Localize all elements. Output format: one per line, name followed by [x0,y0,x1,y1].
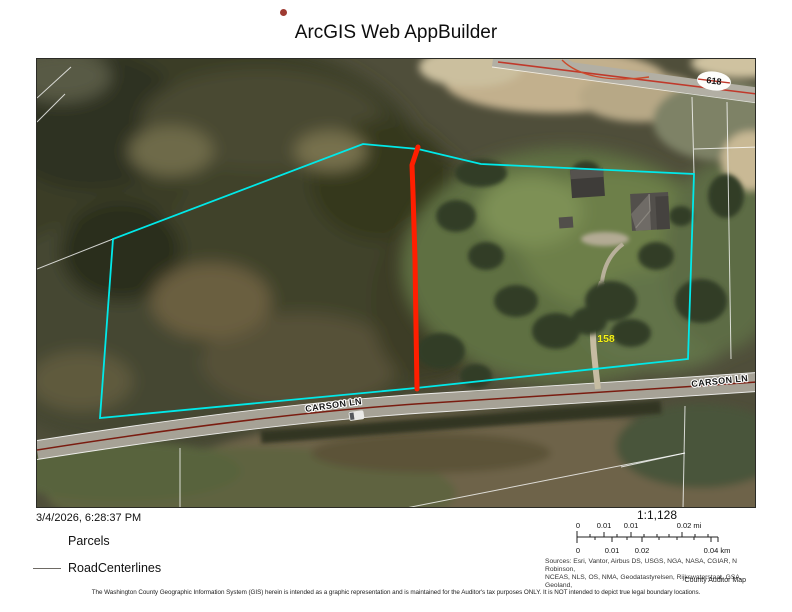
aerial-map-image: 618 CARSON LN CARSON LN 158 [37,59,756,508]
legend-item-parcels: Parcels [68,534,110,548]
barn-building [570,168,605,198]
route-shield-label: 618 [706,75,722,87]
sources-line-1: Sources: Esri, Vantor, Airbus DS, USGS, … [545,558,759,574]
parcel-number-label: 158 [597,333,615,345]
scale-mi-0: 0 [576,521,580,530]
print-timestamp: 3/4/2026, 6:28:37 PM [36,512,141,524]
status-dot-icon [280,9,287,16]
scale-ticks-mi [577,531,708,537]
map-canvas: 618 CARSON LN CARSON LN 158 [36,58,756,508]
scale-mi-3: 0.02 mi [677,521,702,530]
scale-ticks-km [577,537,718,543]
map-sources-attribution: Sources: Esri, Vantor, Airbus DS, USGS, … [545,558,759,590]
legend-item-roadcenterlines: RoadCenterlines [68,561,161,575]
scale-km-1: 0.01 [605,546,620,555]
shed-building [559,217,574,229]
house-building [630,192,670,231]
scale-mi-1: 0.01 [597,521,612,530]
print-page: { "header": { "title": "ArcGIS Web AppBu… [0,0,792,612]
legend-swatch-parcels [33,535,61,549]
map-credit: County Auditor Map [545,577,746,584]
scale-km-0: 0 [576,546,580,555]
scale-bar: 0 0.01 0.01 0.02 mi 0 0.01 0.02 0.04 km [565,519,745,557]
legend-swatch-roadcenterlines [33,562,61,576]
scale-km-2: 0.02 [635,546,650,555]
scale-km-3: 0.04 km [704,546,731,555]
disclaimer-text: The Washington County Geographic Informa… [0,589,792,596]
scale-mi-2: 0.01 [624,521,639,530]
page-title: ArcGIS Web AppBuilder [0,22,792,44]
